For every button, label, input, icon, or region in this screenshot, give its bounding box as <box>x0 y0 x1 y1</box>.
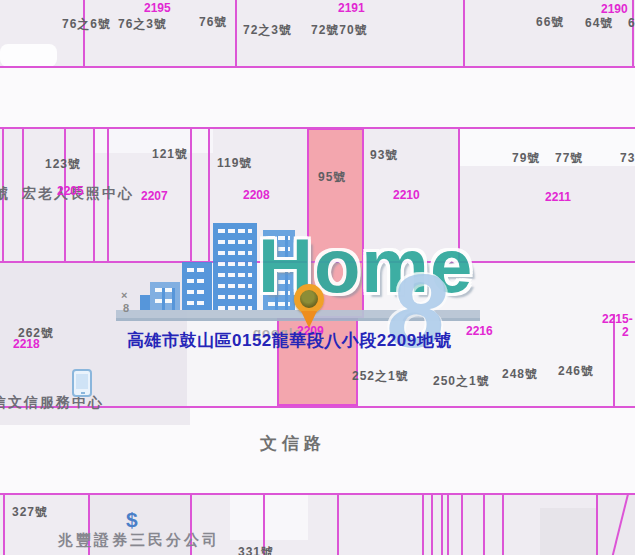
parcel-number-label: 2207 <box>141 190 168 203</box>
house-number-label: 95號 <box>318 171 346 184</box>
map-annotation: 8 <box>123 302 129 314</box>
house-number-label: 252之1號 <box>352 370 409 383</box>
house-number-label: 77號 <box>555 152 583 165</box>
house-number-label: 76之3號 <box>118 18 167 31</box>
house-number-label: 72號70號 <box>311 24 368 37</box>
house-number-label: 93號 <box>370 149 398 162</box>
house-number-label: 76之6號 <box>62 18 111 31</box>
house-number-label: 73號 <box>620 152 635 165</box>
house-number-label: 331號 <box>238 546 274 555</box>
pin-head-icon <box>294 284 324 314</box>
parcel-number-label: 2191 <box>338 2 365 15</box>
house-number-label: 121號 <box>152 148 188 161</box>
house-number-label: 66號 <box>536 16 564 29</box>
map-annotation: × <box>121 289 127 301</box>
map-labels-layer: 76之6號76之3號76號72之3號72號70號66號64號62號2195219… <box>0 0 635 555</box>
parcel-number-label: 2 <box>622 326 629 339</box>
parcel-number-label: 2205 <box>57 185 84 198</box>
map-canvas[interactable]: Home 8 76之6號76之3號76號72之3號72號70號66號64號62號… <box>0 0 635 555</box>
house-number-label: 64號 <box>585 17 613 30</box>
parcel-address-label: 高雄市鼓山區0152龍華段八小段2209地號 <box>127 332 452 351</box>
phone-icon <box>72 369 92 397</box>
house-number-label: 72之3號 <box>243 24 292 37</box>
house-number-label: 246號 <box>558 365 594 378</box>
house-number-label: 62號 <box>628 17 635 30</box>
house-number-label: 123號 <box>45 158 81 171</box>
house-number-label: 79號 <box>512 152 540 165</box>
pin-tip-icon <box>301 311 317 328</box>
bank-icon: $ <box>126 508 138 531</box>
parcel-number-label: 2218 <box>13 338 40 351</box>
house-number-label: 248號 <box>502 368 538 381</box>
house-number-label: 250之1號 <box>433 375 490 388</box>
house-number-label: 76號 <box>199 16 227 29</box>
parcel-number-label: 2195 <box>144 2 171 15</box>
parcel-number-label: 2190 <box>601 3 628 16</box>
parcel-number-label: 2211 <box>545 191 571 204</box>
house-number-label: 119號 <box>217 157 252 170</box>
poi-label: 號 <box>0 186 10 201</box>
road-name-label: 文信路 <box>260 435 326 454</box>
parcel-number-label: 2208 <box>243 189 270 202</box>
poi-label: 兆豐證券三民分公司 <box>58 532 220 549</box>
map-pin[interactable] <box>294 284 324 330</box>
parcel-number-label: 2210 <box>393 189 420 202</box>
house-number-label: 327號 <box>12 506 48 519</box>
parcel-number-label: 2216 <box>466 325 493 338</box>
poi-label: 信文信服務中心 <box>0 395 104 410</box>
